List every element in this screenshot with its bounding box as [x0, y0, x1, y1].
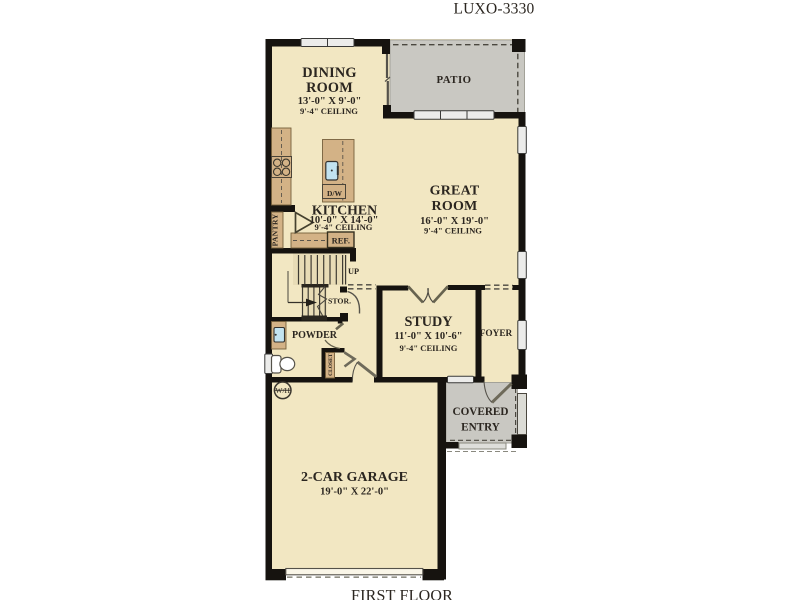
svg-text:9'-4" CEILING: 9'-4" CEILING: [424, 225, 482, 235]
svg-text:PANTRY: PANTRY: [271, 213, 280, 246]
svg-text:LUXO-3330: LUXO-3330: [453, 1, 534, 18]
svg-text:REF.: REF.: [332, 236, 350, 246]
svg-text:2-CAR GARAGE: 2-CAR GARAGE: [301, 470, 408, 485]
svg-text:D/W: D/W: [327, 189, 343, 198]
svg-text:19'-0" X 22'-0": 19'-0" X 22'-0": [320, 487, 389, 498]
svg-text:ENTRY: ENTRY: [461, 422, 500, 434]
svg-text:ROOM: ROOM: [432, 199, 478, 214]
svg-text:W/H: W/H: [275, 386, 290, 395]
svg-text:ROOM: ROOM: [306, 80, 353, 96]
svg-text:9'-4" CEILING: 9'-4" CEILING: [314, 222, 372, 232]
svg-text:FOYER: FOYER: [480, 329, 513, 339]
svg-text:9'-4" CEILING: 9'-4" CEILING: [399, 343, 457, 353]
svg-text:11'-0" X 10'-6": 11'-0" X 10'-6": [394, 331, 462, 342]
svg-text:FIRST FLOOR: FIRST FLOOR: [351, 588, 453, 600]
svg-text:UP: UP: [348, 267, 359, 276]
svg-text:STUDY: STUDY: [404, 314, 452, 330]
svg-text:PATIO: PATIO: [436, 74, 471, 86]
svg-text:DINING: DINING: [302, 65, 356, 81]
svg-text:POWDER: POWDER: [292, 330, 338, 341]
svg-text:GREAT: GREAT: [430, 184, 480, 199]
svg-text:9'-4" CEILING: 9'-4" CEILING: [300, 106, 358, 116]
svg-text:CLOSET: CLOSET: [328, 353, 334, 376]
svg-text:COVERED: COVERED: [453, 406, 509, 418]
svg-text:STOR.: STOR.: [328, 297, 351, 306]
